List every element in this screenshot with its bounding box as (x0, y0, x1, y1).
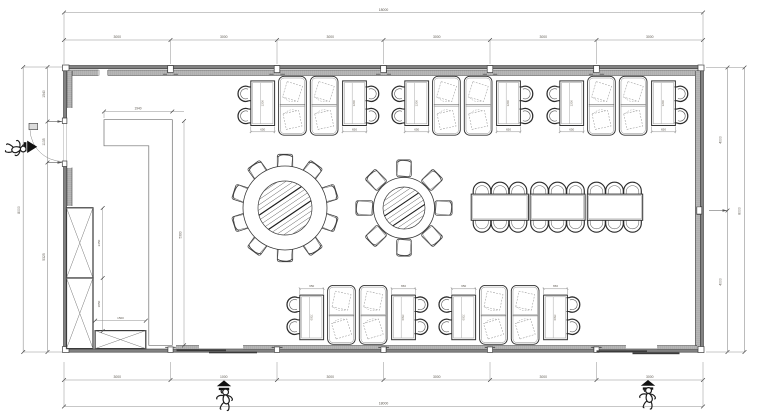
svg-text:1000: 1000 (220, 375, 228, 379)
svg-text:3000: 3000 (539, 375, 547, 379)
svg-text:3000: 3000 (646, 35, 654, 39)
svg-text:3000: 3000 (113, 375, 121, 379)
svg-text:650: 650 (260, 128, 265, 132)
svg-text:3000: 3000 (113, 35, 121, 39)
svg-text:3000: 3000 (646, 375, 654, 379)
svg-text:2450: 2450 (97, 239, 101, 246)
svg-text:3000: 3000 (433, 35, 441, 39)
svg-text:650: 650 (352, 128, 357, 132)
svg-text:650: 650 (414, 128, 419, 132)
svg-text:650: 650 (461, 284, 466, 288)
svg-text:18000: 18000 (379, 402, 389, 406)
svg-text:3000: 3000 (433, 375, 441, 379)
svg-text:3000: 3000 (326, 35, 334, 39)
svg-text:8000: 8000 (738, 207, 742, 215)
svg-text:4000: 4000 (719, 278, 723, 286)
svg-text:650: 650 (553, 284, 558, 288)
svg-text:1940: 1940 (134, 107, 141, 111)
svg-text:18000: 18000 (379, 8, 389, 12)
svg-text:1135: 1135 (42, 138, 46, 145)
svg-text:3000: 3000 (220, 35, 228, 39)
svg-text:4000: 4000 (719, 136, 723, 144)
svg-text:1540: 1540 (42, 90, 46, 98)
svg-text:3000: 3000 (539, 35, 547, 39)
svg-text:5300: 5300 (178, 231, 182, 238)
svg-text:1850: 1850 (97, 300, 101, 307)
svg-text:1500: 1500 (117, 316, 124, 320)
svg-text:650: 650 (506, 128, 511, 132)
svg-text:650: 650 (309, 284, 314, 288)
svg-text:5325: 5325 (42, 253, 46, 261)
svg-text:650: 650 (661, 128, 666, 132)
svg-text:650: 650 (401, 284, 406, 288)
svg-text:3000: 3000 (326, 375, 334, 379)
svg-text:650: 650 (569, 128, 574, 132)
svg-text:8000: 8000 (17, 206, 21, 214)
